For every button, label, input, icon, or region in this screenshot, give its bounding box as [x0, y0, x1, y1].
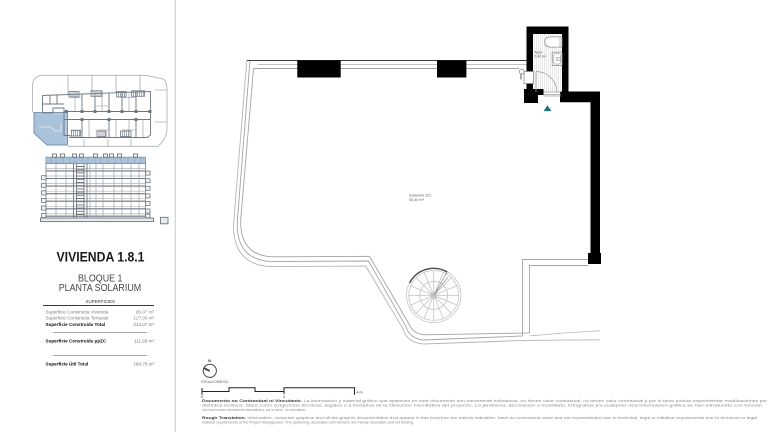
svg-text:94,40 m²: 94,40 m² — [409, 198, 425, 202]
svg-text:initiative requirements of the: initiative requirements of the Project M… — [202, 421, 414, 425]
svg-text:111,69 m²: 111,69 m² — [134, 339, 154, 344]
svg-text:con una función meramente deco: con una función meramente decorativa y, … — [202, 408, 306, 412]
svg-text:2,40 m²: 2,40 m² — [535, 55, 547, 59]
svg-text:Superficie Construida Terrazas: Superficie Construida Terrazas — [46, 316, 109, 321]
svg-text:VIVIENDA 1.8.1: VIVIENDA 1.8.1 — [57, 250, 145, 265]
svg-text:Superficie Construida Vivienda: Superficie Construida Vivienda — [46, 310, 109, 315]
svg-text:ESCALA GRÁFICA: ESCALA GRÁFICA — [201, 380, 228, 384]
svg-text:86,07 m²: 86,07 m² — [136, 310, 155, 315]
svg-text:N: N — [208, 358, 211, 363]
svg-text:Rough Translation. Information: Rough Translation. Information, computer… — [202, 416, 757, 420]
svg-text:184,79 m²: 184,79 m² — [133, 362, 154, 367]
svg-text:distintos motivos, tales como: distintos motivos, tales como exigencias… — [202, 404, 762, 408]
svg-text:Superficie Construida ppZC: Superficie Construida ppZC — [46, 339, 107, 344]
svg-text:Superficie Útil Total: Superficie Útil Total — [46, 361, 89, 367]
svg-text:127,00 m²: 127,00 m² — [133, 316, 154, 321]
svg-text:Solarium 101: Solarium 101 — [409, 194, 431, 198]
svg-text:213,07 m²: 213,07 m² — [132, 322, 154, 327]
svg-text:4 m: 4 m — [357, 391, 363, 395]
svg-text:PLANTA SOLARIUM: PLANTA SOLARIUM — [59, 283, 142, 294]
svg-text:Superficie Construida Total: Superficie Construida Total — [46, 322, 106, 327]
svg-text:Documento no Contractual ni Vi: Documento no Contractual ni Vinculante. … — [202, 399, 768, 403]
svg-text:SUPERFICIES: SUPERFICIES — [86, 299, 116, 304]
